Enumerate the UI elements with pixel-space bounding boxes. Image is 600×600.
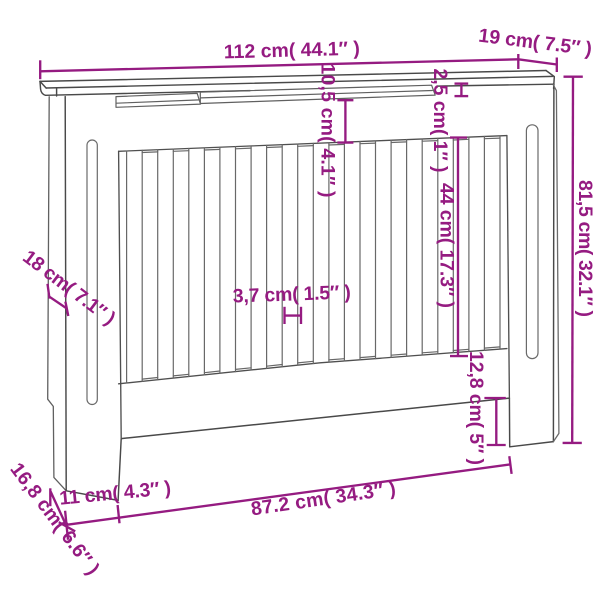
svg-text:10,5 cm( 4.1″ ): 10,5 cm( 4.1″ ) xyxy=(317,64,339,198)
svg-text:2,5 cm( 1″ ): 2,5 cm( 1″ ) xyxy=(429,69,451,173)
svg-text:12,8 cm( 5″ ): 12,8 cm( 5″ ) xyxy=(465,351,487,465)
svg-text:44 cm( 17.3″ ): 44 cm( 17.3″ ) xyxy=(436,183,458,308)
svg-text:112 cm( 44.1″ ): 112 cm( 44.1″ ) xyxy=(224,38,361,64)
svg-text:3,7 cm( 1.5″ ): 3,7 cm( 1.5″ ) xyxy=(232,281,351,307)
svg-text:81,5 cm( 32.1″ ): 81,5 cm( 32.1″ ) xyxy=(574,180,596,317)
